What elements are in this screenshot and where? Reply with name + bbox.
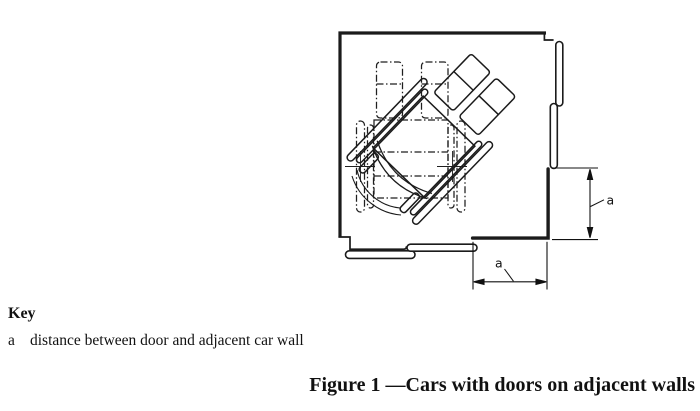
dim-a-bottom-label: a <box>495 256 503 271</box>
axle-crosshairs <box>345 151 467 182</box>
rotated-footrest-left-divider <box>454 72 473 91</box>
dimension-a-right: a <box>552 168 614 240</box>
leader-line <box>591 200 605 207</box>
key-block: Key a distance between door and adjacent… <box>8 305 304 350</box>
door-panel-bottom-outer <box>346 251 416 259</box>
door-panel-bottom-inner <box>407 244 477 251</box>
leader-line <box>505 269 514 281</box>
rotated-footrest-right-divider <box>479 96 498 115</box>
door-panels <box>346 42 563 259</box>
wall-top-left <box>340 33 546 237</box>
rotated-seat <box>373 96 475 198</box>
phantom-footrest-right <box>422 62 449 118</box>
key-item-symbol: a <box>8 332 30 350</box>
rotated-footrest-right <box>459 78 516 136</box>
arrowhead-down-icon <box>587 228 592 238</box>
wall-bottom-right <box>473 169 548 238</box>
arrowhead-up-icon <box>587 169 592 179</box>
key-item-text: distance between door and adjacent car w… <box>30 332 304 350</box>
arrowhead-right-icon <box>536 279 546 284</box>
dimension-a-bottom: a <box>473 242 547 290</box>
turning-arcs <box>352 170 401 215</box>
door-panel-right-inner <box>550 104 557 169</box>
figure-caption: Figure 1 —Cars with doors on adjacent wa… <box>0 374 695 397</box>
wall-bottom-left-jamb <box>338 237 406 249</box>
phantom-footrest-left <box>377 62 403 118</box>
key-title: Key <box>8 305 304 323</box>
arrowhead-left-icon <box>474 279 484 284</box>
door-panel-right-outer <box>556 42 563 107</box>
dim-a-right-label: a <box>607 193 615 208</box>
key-item: a distance between door and adjacent car… <box>8 332 304 350</box>
document-page: a a Key a distance between door and adja… <box>0 0 700 411</box>
